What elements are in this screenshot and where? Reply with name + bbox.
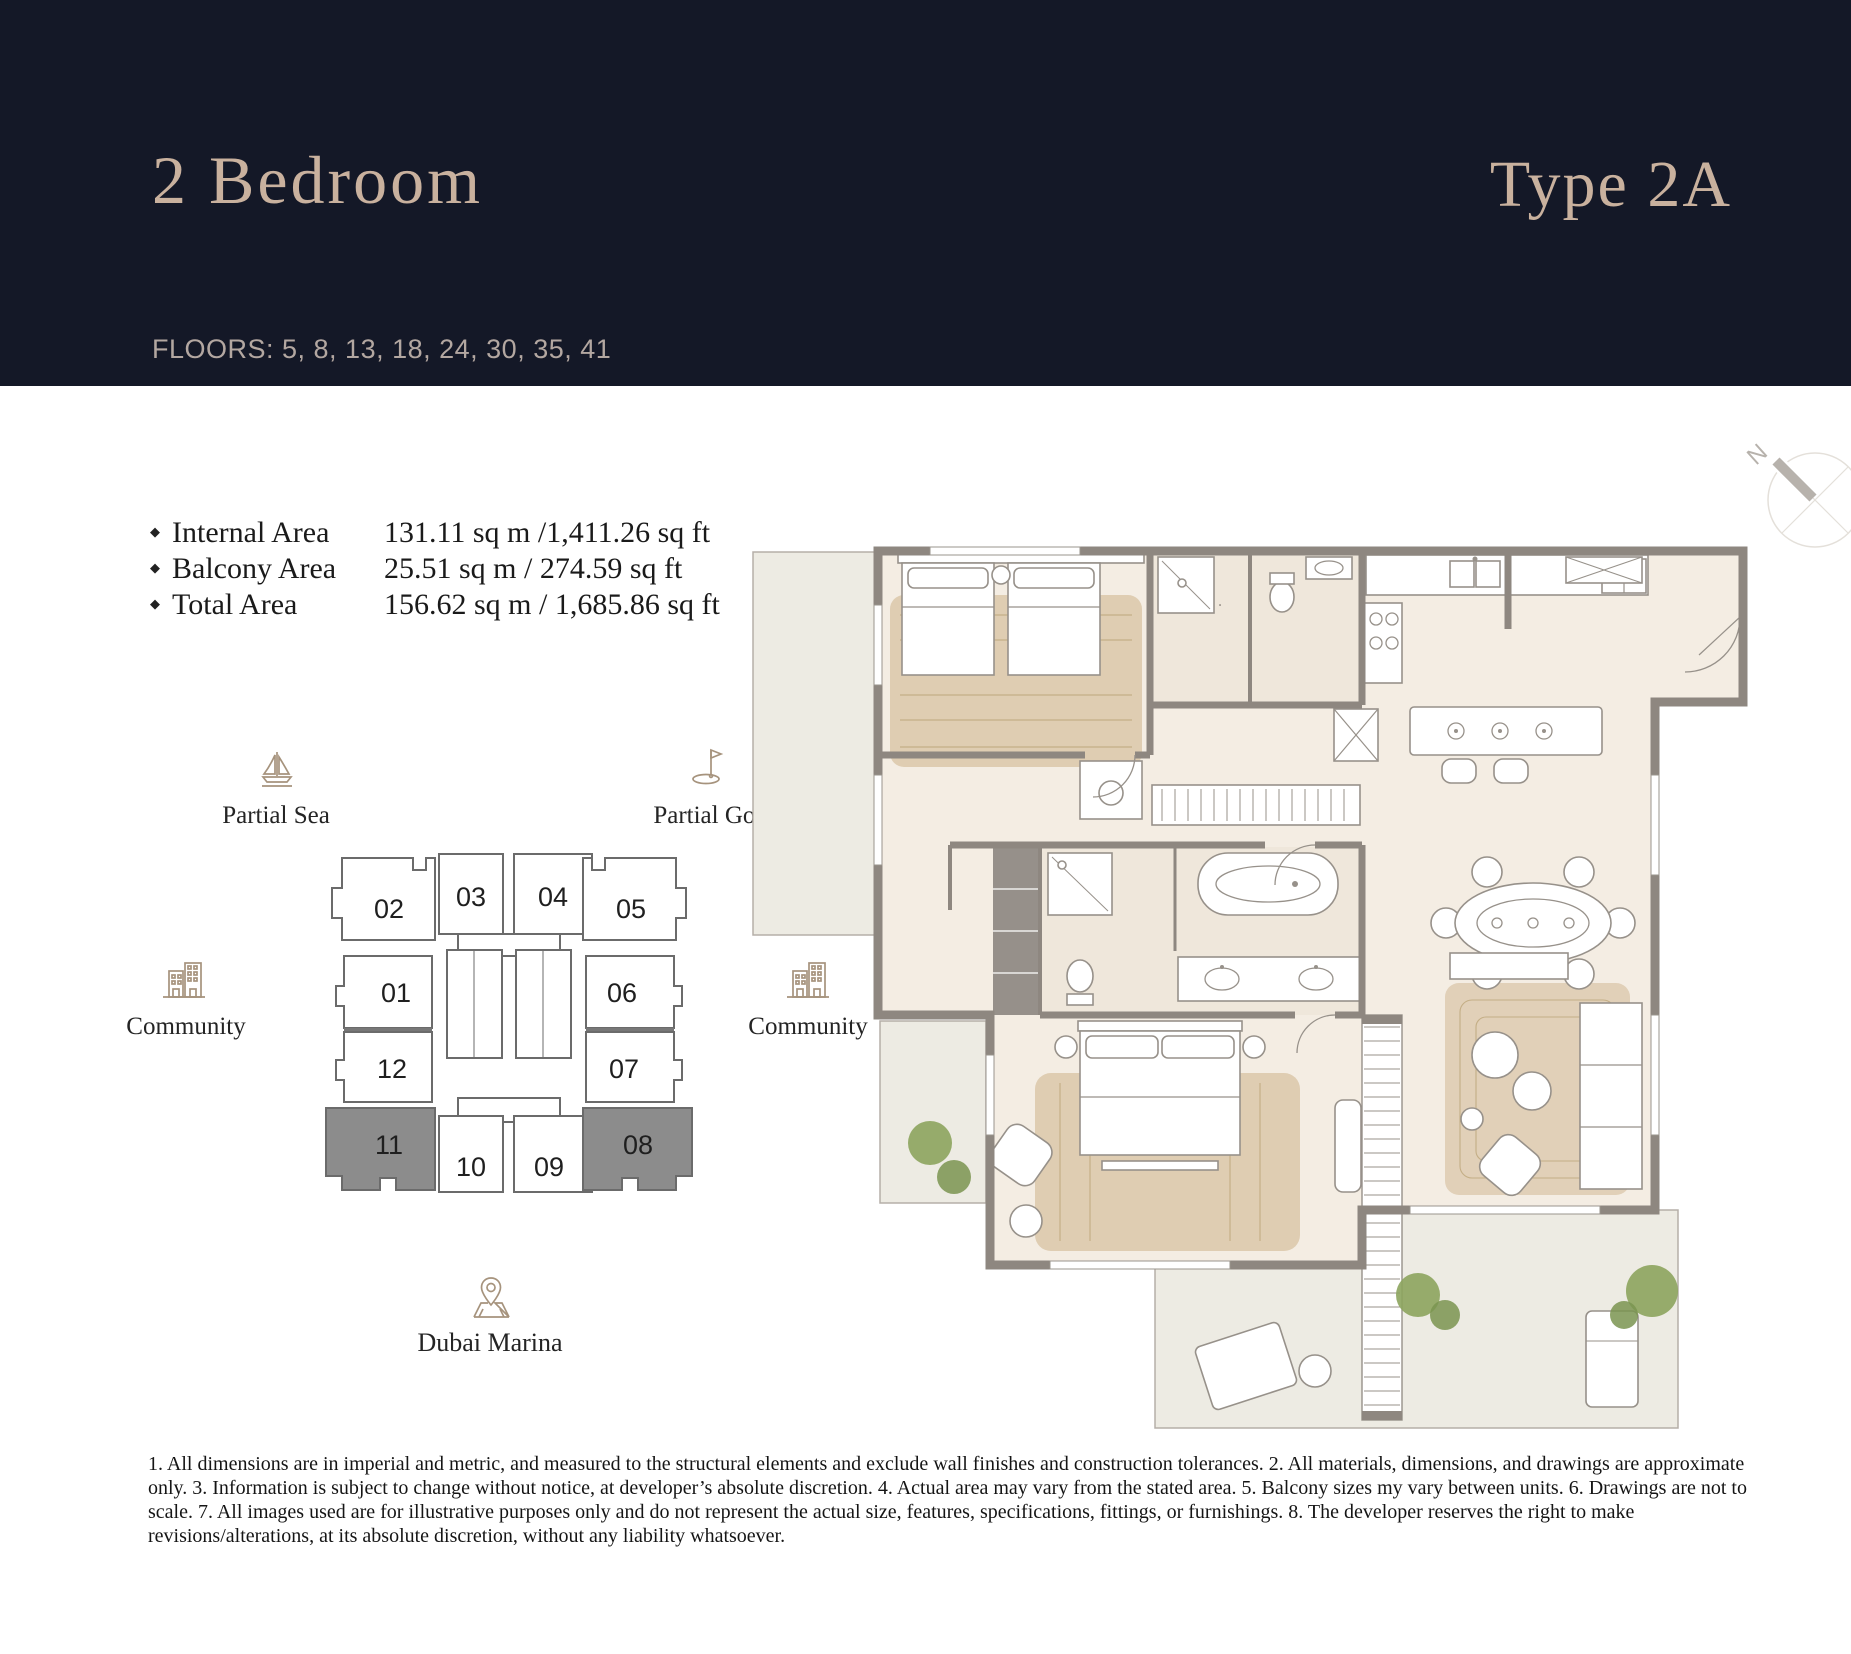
floor-plan xyxy=(750,455,1800,1467)
svg-text:11: 11 xyxy=(375,1130,403,1160)
svg-text:12: 12 xyxy=(377,1054,407,1084)
header-band: 2 Bedroom Type 2A FLOORS: 5, 8, 13, 18, … xyxy=(0,0,1851,386)
stat-internal-area: ◆ Internal Area 131.11 sq m /1,411.26 sq… xyxy=(150,516,720,552)
partial-sea-label: Partial Sea xyxy=(156,802,396,830)
diamond-bullet-icon: ◆ xyxy=(150,561,172,576)
svg-text:01: 01 xyxy=(381,978,411,1008)
svg-text:02: 02 xyxy=(374,894,404,924)
dubai-marina-label: Dubai Marina xyxy=(370,1328,610,1358)
golf-flag-icon xyxy=(686,744,728,790)
diamond-bullet-icon: ◆ xyxy=(150,597,172,612)
svg-text:07: 07 xyxy=(609,1054,639,1084)
stat-label: Total Area xyxy=(172,588,384,622)
floors-line: FLOORS: 5, 8, 13, 18, 24, 30, 35, 41 xyxy=(152,334,611,365)
community-left-label: Community xyxy=(66,1013,306,1041)
svg-text:03: 03 xyxy=(456,882,486,912)
diamond-bullet-icon: ◆ xyxy=(150,525,172,540)
community-buildings-icon xyxy=(160,956,208,1000)
svg-text:10: 10 xyxy=(456,1152,486,1182)
area-stats: ◆ Internal Area 131.11 sq m /1,411.26 sq… xyxy=(150,516,720,624)
sailboat-icon xyxy=(256,746,298,790)
stat-balcony-area: ◆ Balcony Area 25.51 sq m / 274.59 sq ft xyxy=(150,552,720,588)
svg-text:04: 04 xyxy=(538,882,568,912)
svg-text:06: 06 xyxy=(607,978,637,1008)
map-pin-icon xyxy=(466,1272,516,1322)
svg-text:05: 05 xyxy=(616,894,646,924)
page-title: 2 Bedroom xyxy=(152,146,483,214)
stat-value: 131.11 sq m /1,411.26 sq ft xyxy=(384,516,710,550)
stat-label: Balcony Area xyxy=(172,552,384,586)
key-plan: 02 03 04 05 01 06 12 07 11 10 09 08 xyxy=(316,846,702,1214)
svg-text:08: 08 xyxy=(623,1130,653,1160)
stat-label: Internal Area xyxy=(172,516,384,550)
louver-screen xyxy=(1362,1015,1402,1420)
stat-total-area: ◆ Total Area 156.62 sq m / 1,685.86 sq f… xyxy=(150,588,720,624)
svg-text:09: 09 xyxy=(534,1152,564,1182)
stat-value: 25.51 sq m / 274.59 sq ft xyxy=(384,552,682,586)
unit-type-title: Type 2A xyxy=(1490,152,1732,218)
stat-value: 156.62 sq m / 1,685.86 sq ft xyxy=(384,588,720,622)
disclaimer-text: 1. All dimensions are in imperial and me… xyxy=(148,1452,1748,1548)
